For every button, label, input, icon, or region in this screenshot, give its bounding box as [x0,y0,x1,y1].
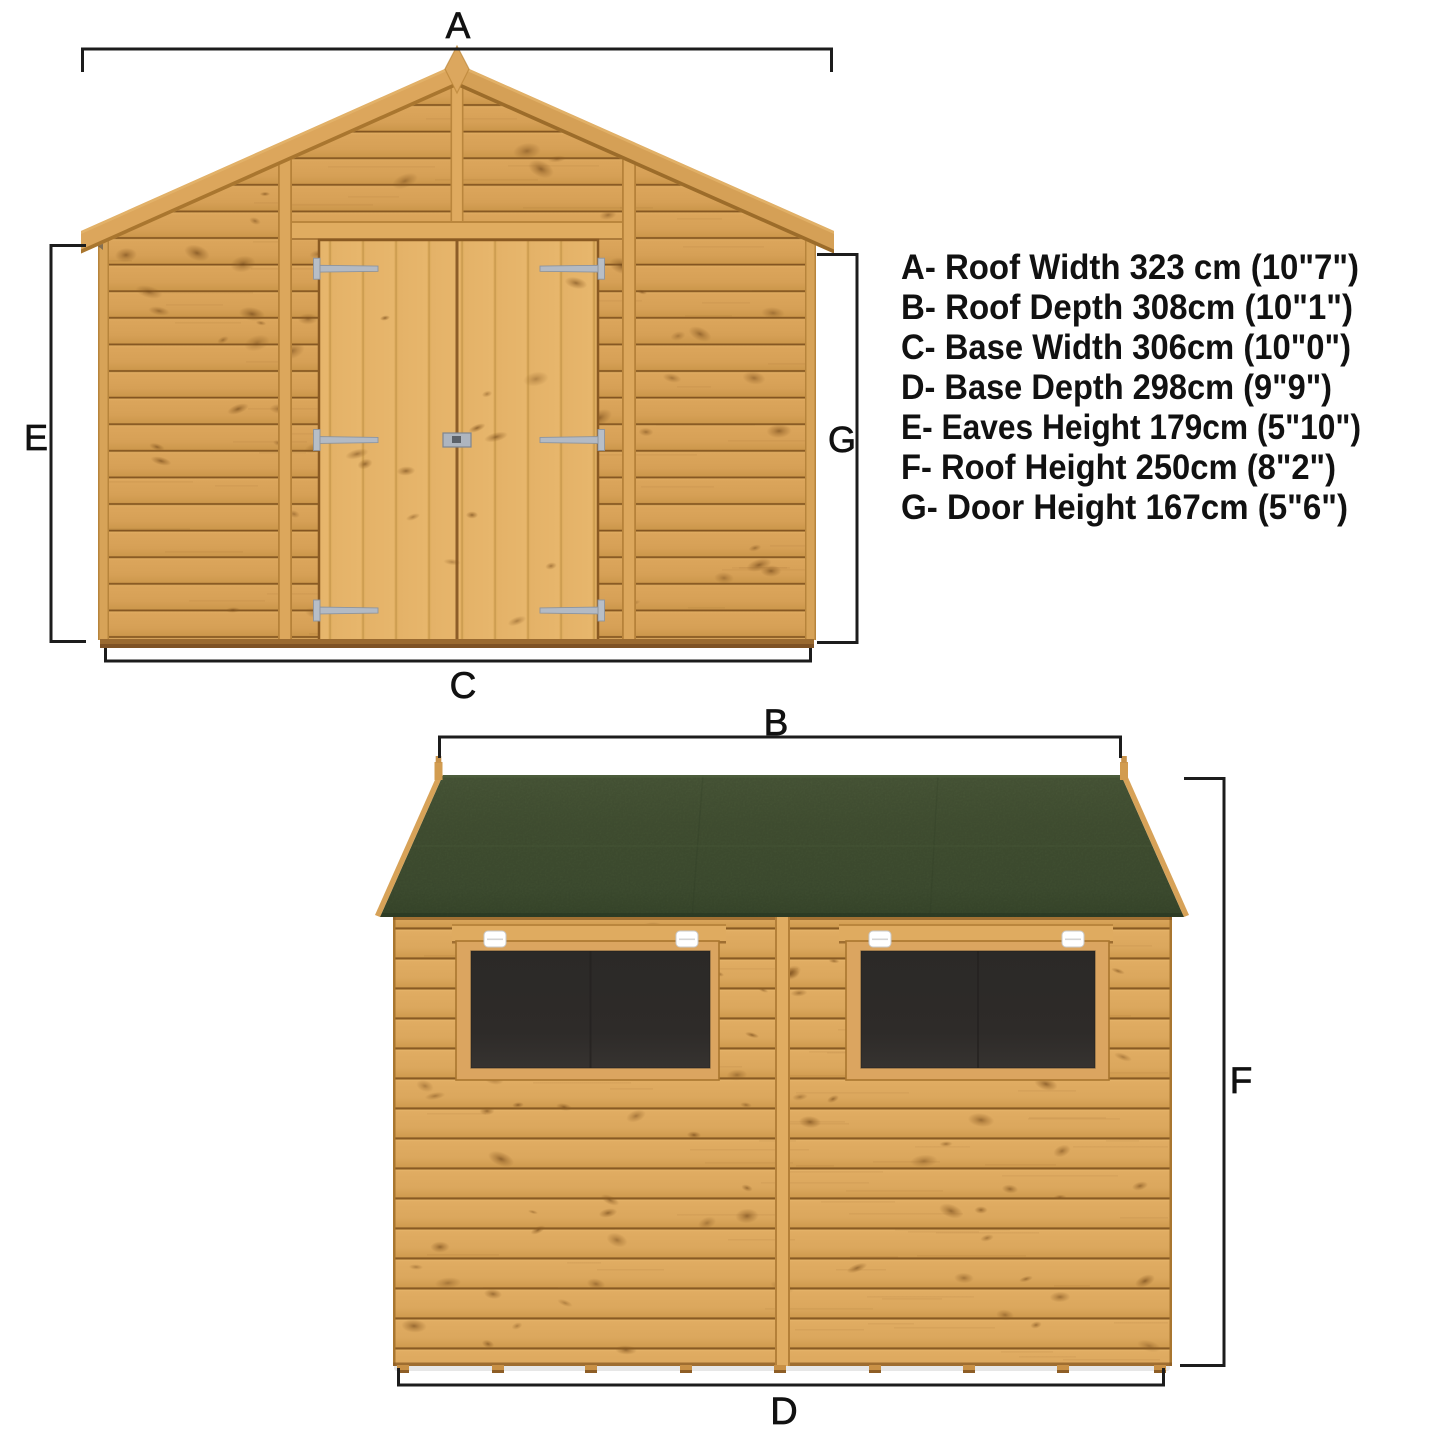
svg-text:F- Roof Height 250cm (8"2"): F- Roof Height 250cm (8"2") [901,448,1336,487]
svg-text:C- Base Width 306cm (10"0"): C- Base Width 306cm (10"0") [901,328,1351,367]
svg-text:F: F [1230,1060,1253,1101]
svg-text:B: B [764,702,789,743]
svg-text:C: C [450,665,477,706]
svg-text:G- Door Height 167cm (5"6"): G- Door Height 167cm (5"6") [901,488,1348,527]
svg-text:D- Base Depth 298cm (9"9"): D- Base Depth 298cm (9"9") [901,368,1332,407]
svg-text:G: G [828,419,856,460]
svg-text:A: A [446,5,471,46]
svg-text:E: E [24,417,48,458]
svg-text:D: D [770,1391,797,1433]
svg-text:B- Roof Depth 308cm (10"1"): B- Roof Depth 308cm (10"1") [901,288,1353,327]
svg-text:E- Eaves Height 179cm (5"10"): E- Eaves Height 179cm (5"10") [901,408,1361,447]
svg-text:A- Roof Width 323 cm (10"7"): A- Roof Width 323 cm (10"7") [901,248,1359,287]
